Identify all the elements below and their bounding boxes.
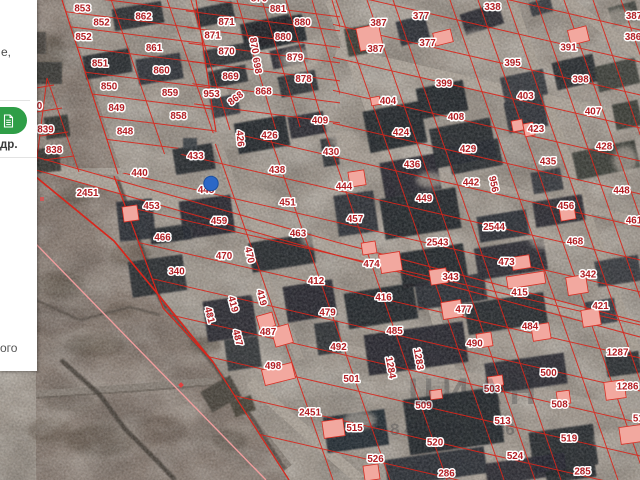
svg-text:850: 850 — [101, 81, 118, 92]
svg-text:285: 285 — [574, 466, 591, 477]
svg-text:498: 498 — [265, 361, 282, 372]
svg-text:421: 421 — [592, 301, 609, 312]
svg-text:484: 484 — [522, 321, 539, 332]
svg-text:2543: 2543 — [427, 237, 449, 248]
svg-text:870: 870 — [218, 46, 235, 57]
svg-text:1286: 1286 — [617, 381, 639, 392]
svg-text:430: 430 — [323, 147, 340, 158]
svg-text:433: 433 — [187, 151, 204, 162]
svg-text:429: 429 — [460, 144, 477, 155]
svg-text:490: 490 — [466, 338, 483, 349]
svg-text:391: 391 — [560, 42, 577, 53]
svg-text:ЦИАН: ЦИАН — [408, 371, 543, 412]
svg-text:426: 426 — [261, 130, 278, 141]
svg-text:8 495 662-66-36: 8 495 662-66-36 — [390, 420, 515, 439]
svg-text:451: 451 — [279, 197, 296, 208]
svg-text:871: 871 — [218, 17, 235, 28]
svg-text:426: 426 — [233, 130, 245, 148]
svg-text:412: 412 — [308, 276, 325, 287]
svg-text:526: 526 — [367, 454, 384, 465]
svg-text:459: 459 — [211, 216, 228, 227]
svg-text:501: 501 — [343, 374, 360, 385]
svg-text:851: 851 — [92, 58, 109, 69]
svg-text:463: 463 — [290, 228, 307, 239]
svg-text:508: 508 — [551, 399, 568, 410]
svg-text:387: 387 — [367, 44, 384, 55]
svg-text:436: 436 — [404, 159, 421, 170]
svg-text:839: 839 — [37, 124, 54, 135]
svg-text:398: 398 — [572, 74, 589, 85]
svg-text:377: 377 — [419, 38, 436, 49]
svg-text:862: 862 — [135, 11, 152, 22]
svg-text:449: 449 — [416, 193, 433, 204]
svg-text:852: 852 — [75, 32, 92, 43]
svg-text:519: 519 — [561, 433, 578, 444]
svg-text:2451: 2451 — [299, 407, 321, 418]
svg-text:470: 470 — [216, 251, 233, 262]
svg-text:457: 457 — [347, 214, 364, 225]
svg-text:409: 409 — [312, 115, 329, 126]
svg-text:860: 860 — [153, 65, 170, 76]
svg-text:453: 453 — [143, 201, 160, 212]
svg-text:858: 858 — [170, 111, 187, 122]
svg-text:408: 408 — [448, 112, 465, 123]
svg-text:468: 468 — [567, 236, 584, 247]
svg-text:881: 881 — [270, 4, 287, 15]
svg-text:456: 456 — [558, 201, 575, 212]
svg-text:871: 871 — [204, 30, 221, 41]
svg-text:404: 404 — [380, 96, 397, 107]
svg-text:442: 442 — [463, 177, 480, 188]
svg-text:407: 407 — [585, 106, 602, 117]
svg-text:387: 387 — [626, 11, 640, 22]
svg-text:516: 516 — [633, 413, 640, 424]
svg-text:853: 853 — [74, 3, 91, 14]
svg-text:424: 424 — [393, 127, 410, 138]
svg-text:448: 448 — [613, 185, 630, 196]
svg-text:848: 848 — [117, 126, 134, 137]
svg-text:515: 515 — [346, 423, 363, 434]
svg-text:868: 868 — [255, 86, 272, 97]
svg-text:444: 444 — [336, 181, 353, 192]
svg-text:343: 343 — [442, 272, 459, 283]
svg-text:479: 479 — [319, 307, 336, 318]
svg-text:438: 438 — [269, 165, 286, 176]
svg-text:2544: 2544 — [483, 222, 505, 233]
svg-text:524: 524 — [507, 451, 524, 462]
svg-text:861: 861 — [146, 43, 163, 54]
svg-text:520: 520 — [427, 437, 444, 448]
svg-text:838: 838 — [46, 145, 63, 156]
svg-text:286: 286 — [438, 468, 455, 479]
svg-text:395: 395 — [504, 58, 521, 69]
svg-text:461: 461 — [626, 215, 640, 226]
svg-text:387: 387 — [370, 18, 387, 29]
svg-text:440: 440 — [131, 168, 148, 179]
svg-text:485: 485 — [386, 326, 403, 337]
svg-text:342: 342 — [580, 269, 597, 280]
svg-text:849: 849 — [108, 103, 125, 114]
svg-text:423: 423 — [528, 124, 545, 135]
svg-text:878: 878 — [295, 74, 312, 85]
svg-text:474: 474 — [363, 259, 380, 270]
svg-text:870: 870 — [251, 0, 268, 4]
svg-text:377: 377 — [413, 11, 430, 22]
svg-text:1287: 1287 — [607, 347, 629, 358]
svg-text:879: 879 — [287, 52, 304, 63]
svg-text:338: 338 — [484, 2, 501, 13]
svg-text:466: 466 — [154, 232, 171, 243]
svg-text:880: 880 — [275, 32, 292, 43]
svg-text:477: 477 — [455, 304, 472, 315]
svg-text:399: 399 — [436, 78, 453, 89]
svg-text:415: 415 — [511, 287, 528, 298]
svg-text:386: 386 — [625, 32, 640, 43]
svg-text:492: 492 — [330, 342, 347, 353]
svg-text:880: 880 — [294, 17, 311, 28]
svg-text:852: 852 — [93, 17, 110, 28]
svg-text:340: 340 — [168, 266, 185, 277]
svg-text:428: 428 — [596, 141, 613, 152]
svg-text:2451: 2451 — [77, 188, 99, 199]
svg-text:435: 435 — [540, 156, 557, 167]
svg-text:403: 403 — [517, 91, 534, 102]
svg-text:487: 487 — [260, 327, 277, 338]
svg-text:953: 953 — [203, 89, 220, 100]
svg-text:869: 869 — [222, 71, 239, 82]
svg-text:473: 473 — [498, 257, 515, 268]
svg-text:859: 859 — [162, 88, 179, 99]
svg-text:416: 416 — [375, 292, 392, 303]
